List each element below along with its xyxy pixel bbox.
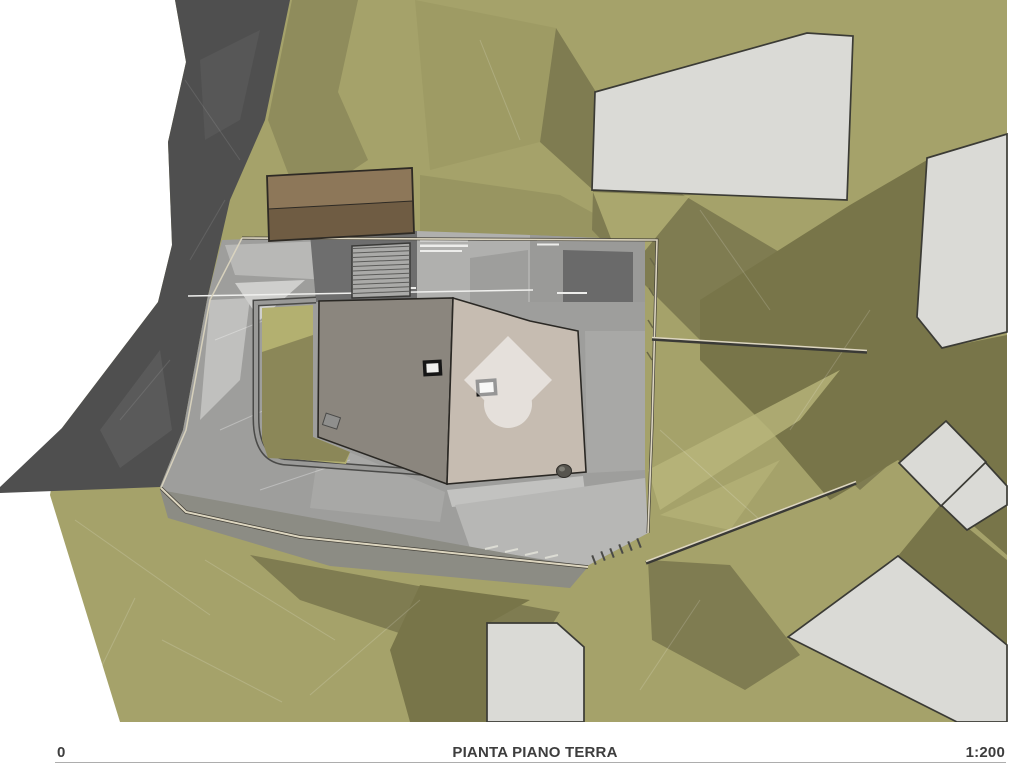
drawing-title: PIANTA PIANO TERRA	[28, 744, 1014, 761]
outbuilding-roof	[267, 168, 414, 241]
site-plan-drawing	[0, 0, 1014, 722]
title-block: 0 PIANTA PIANO TERRA 1:200	[0, 722, 1014, 768]
skylight	[423, 359, 443, 376]
neighbor-building	[917, 134, 1007, 348]
neighbor-building	[487, 623, 584, 722]
roof-chimney-round	[557, 465, 572, 478]
staircase	[352, 243, 410, 298]
scale-ratio-label: 1:200	[966, 744, 1005, 761]
title-block-rule	[55, 762, 1006, 763]
